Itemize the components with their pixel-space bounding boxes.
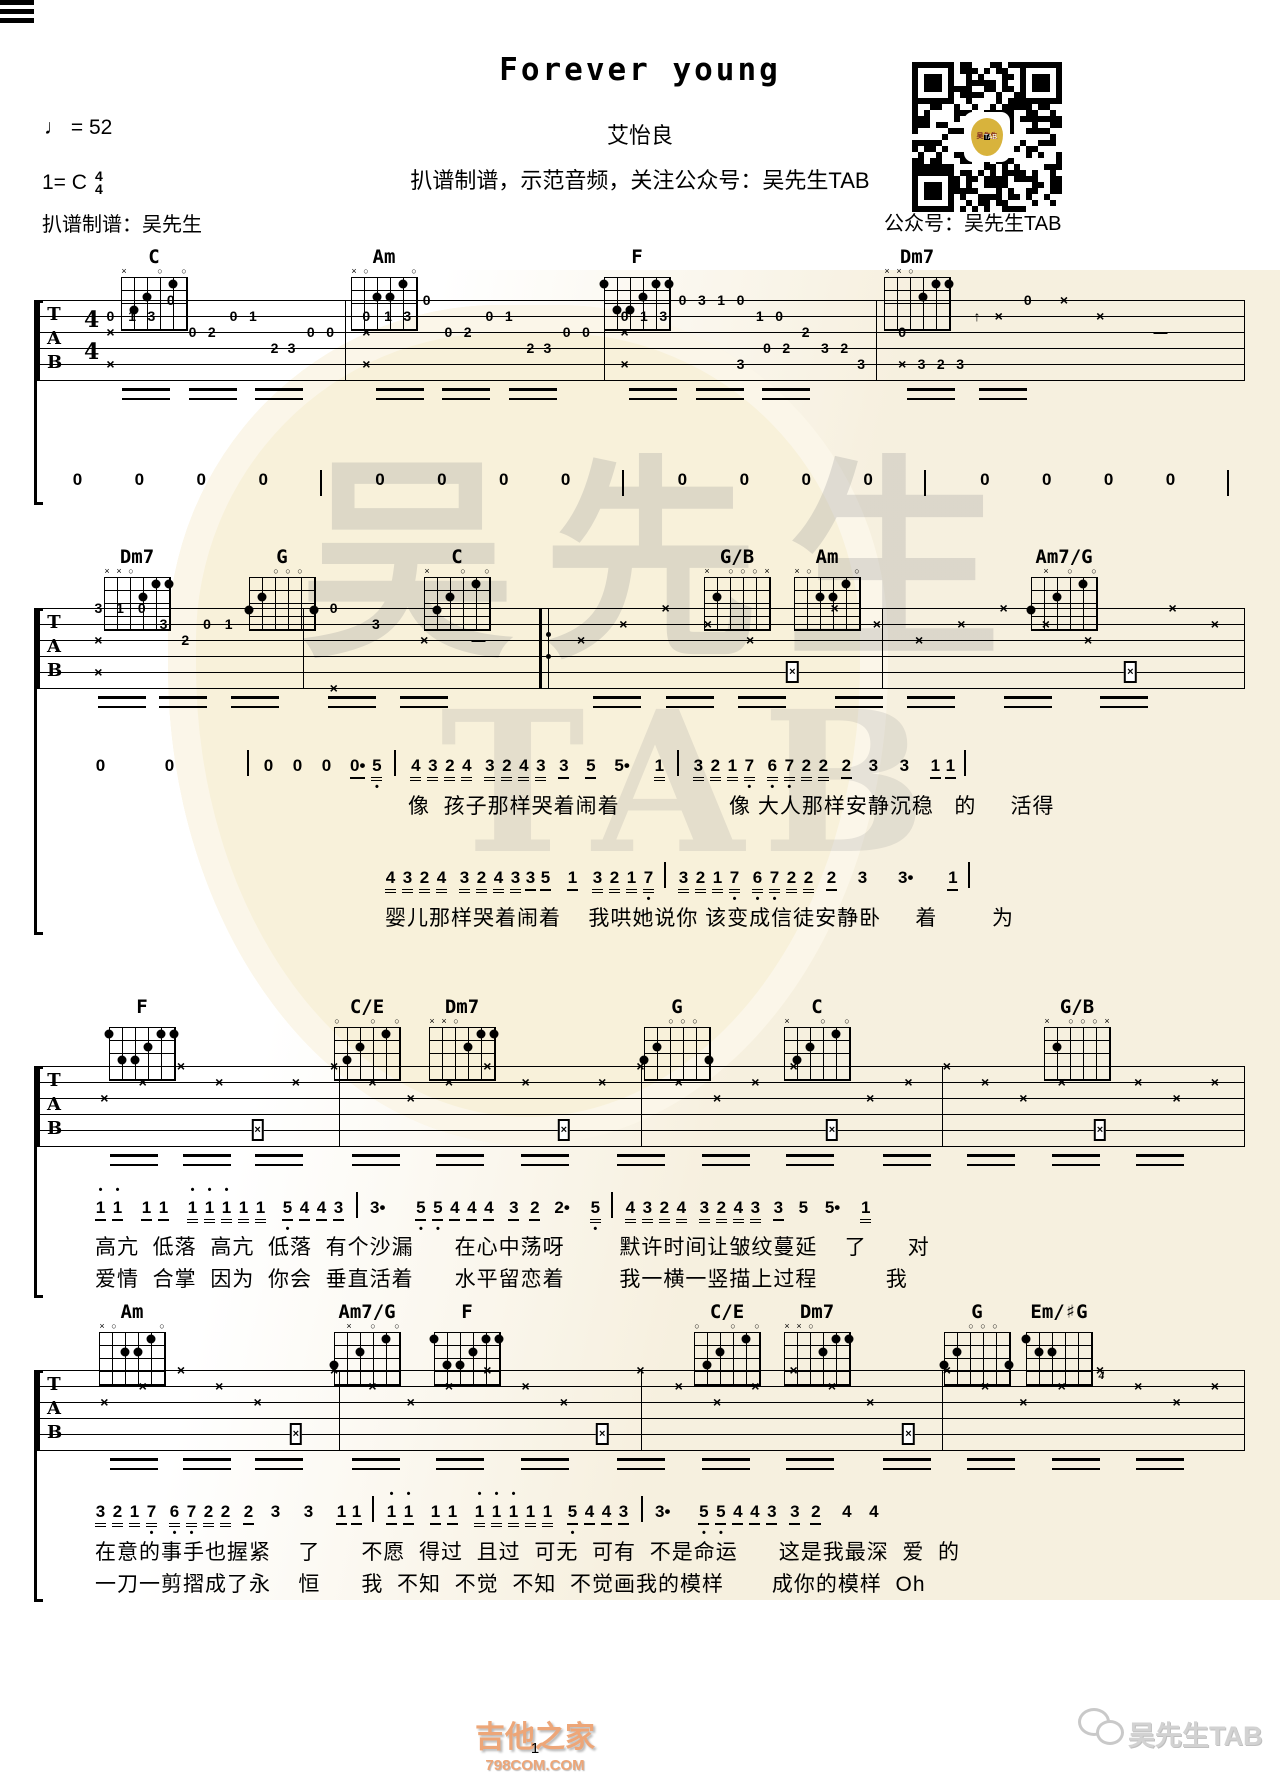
chord-name: G [638,996,716,1017]
chord-string-marks: ○ ○ ○ [328,1017,406,1027]
footer-site-url: 798COM.COM [395,1757,675,1774]
chord-string-marks: ××○ [778,1322,856,1332]
chord-name: Dm7 [878,246,956,267]
chat-bubble-small [1096,1720,1124,1745]
system-bracket [34,1370,37,1602]
transcriber-credit: 扒谱制谱：吴先生 [42,208,202,237]
chord-string-marks: × ○ ○ [778,1017,856,1027]
promo-text: 扒谱制谱，示范音频，关注公众号：吴先生TAB [0,163,1280,195]
chord-name: Am [93,1301,171,1322]
chord-string-marks: ××○ [878,267,956,277]
song-title: Forever young [0,52,1280,88]
lyrics-line: 爱情 合掌 因为 你会 垂直活着 水平留恋着 我一横一竖描上过程 我 [95,1263,908,1293]
chord-string-marks: × ○ ○ [328,1322,406,1332]
melody-line: 321767222331111111111154433•554433244 [95,1496,885,1527]
qr-caption: 公众号：吴先生TAB [884,207,1061,236]
lyrics-line: 在意的事手也握紧 了 不愿 得过 且过 可无 可有 不是命运 这是我最深 爱 的 [95,1536,960,1566]
lyrics-line: 高亢 低落 高亢 低落 有个沙漏 在心中荡呀 默许时间让皱纹蔓延 了 对 [95,1231,930,1261]
chord-string-marks: ×○ ○ [788,567,866,577]
chord-name: G [243,546,321,567]
chord-string-marks: × ○○○× [698,567,776,577]
chord-name: Am [788,546,866,567]
chord-string-marks: ×○ ○ [93,1322,171,1332]
chord-name: C [418,546,496,567]
chord-name: Dm7 [98,546,176,567]
footer-brand: 吴先生TAB [1128,1714,1263,1753]
chord-name: Dm7 [778,1301,856,1322]
chord-string-marks: × ○ ○ [115,267,193,277]
chord-name: F [428,1301,506,1322]
chord-name: C/E [688,1301,766,1322]
chord-name: C [778,996,856,1017]
melody-line: 0000000000000000 [72,470,1237,496]
chord-string-marks: ××○ [98,567,176,577]
chord-string-marks: ○ ○ ○ [688,1322,766,1332]
chord-string-marks [428,1322,506,1332]
chord-name: Am7/G [328,1301,406,1322]
tab-staff: TAB3××1032010×3×—×××××××××××××××× [38,608,1245,689]
chord-name: G/B [1038,996,1116,1017]
chord-name: Am7/G [1025,546,1103,567]
qr-logo-line2: TAB [984,134,990,140]
chord-string-marks [598,267,676,277]
wechat-icon [1078,1708,1126,1750]
chord-string-marks: ○○○ [938,1322,1016,1332]
melody-line: 11111111154433•55444322•543243243355•1 [95,1192,877,1223]
lyrics-line: 一刀一剪摺成了永 恒 我 不知 不觉 不知 不觉画我的模样 成你的模样 Oh [95,1568,926,1598]
tab-staff: TAB440××130020123000××130020123000××1303… [38,300,1245,381]
chord-string-marks: ○○○ [243,567,321,577]
chord-string-marks: ××○ [423,1017,501,1027]
qr-code: 吴先生 TAB [912,62,1062,212]
chord-string-marks: × ○○○× [1038,1017,1116,1027]
chord-name: C/E [328,996,406,1017]
lyrics-line: 婴儿那样哭着闹着 我哄她说你 该变成信徒安静卧 着 为 [385,902,1014,932]
artist-name: 艾怡良 [0,118,1280,150]
chord-name: Dm7 [423,996,501,1017]
watermark-text-sub: TAB [440,685,945,880]
tab-staff: TAB×××××××××××××××××××××××××××××× [38,1066,1245,1147]
page-corner-glyph [0,0,34,25]
chord-string-marks: × ○ ○ [1025,567,1103,577]
system-bracket [34,300,37,505]
page-number: 1 [395,1740,675,1757]
lyrics-line: 像 孩子那样哭着闹着 像 大人那样安静沉稳 的 活得 [408,790,1055,820]
system-bracket [34,1066,37,1298]
melody-line: 000000•543243243355•13217672223311 [95,750,974,781]
chord-name: G [938,1301,1016,1322]
chord-name: Em/♯G [1020,1301,1098,1322]
melody-line: 43243243351321732176722233•1 [385,862,978,893]
system-bracket [34,608,37,935]
chord-name: F [598,246,676,267]
chord-string-marks: × ○ ○ [418,567,496,577]
chord-name: Am [345,246,423,267]
tab-staff: TAB×××××××××××××××××××××××××××××× [38,1370,1245,1451]
chord-string-marks [1020,1322,1098,1332]
chord-name: G/B [698,546,776,567]
chord-string-marks: ×○ ○ [345,267,423,277]
qr-logo: 吴先生 TAB [964,112,1010,162]
chord-name: F [103,996,181,1017]
guitar-pick-logo: 吴先生 TAB [971,118,1003,156]
sheet-music-page: 吴先生 TAB Forever young ♩ = 52 1= C 4 4 艾怡… [0,0,1280,1792]
chord-string-marks [103,1017,181,1027]
chord-name: C [115,246,193,267]
chord-string-marks: ○○○ [638,1017,716,1027]
